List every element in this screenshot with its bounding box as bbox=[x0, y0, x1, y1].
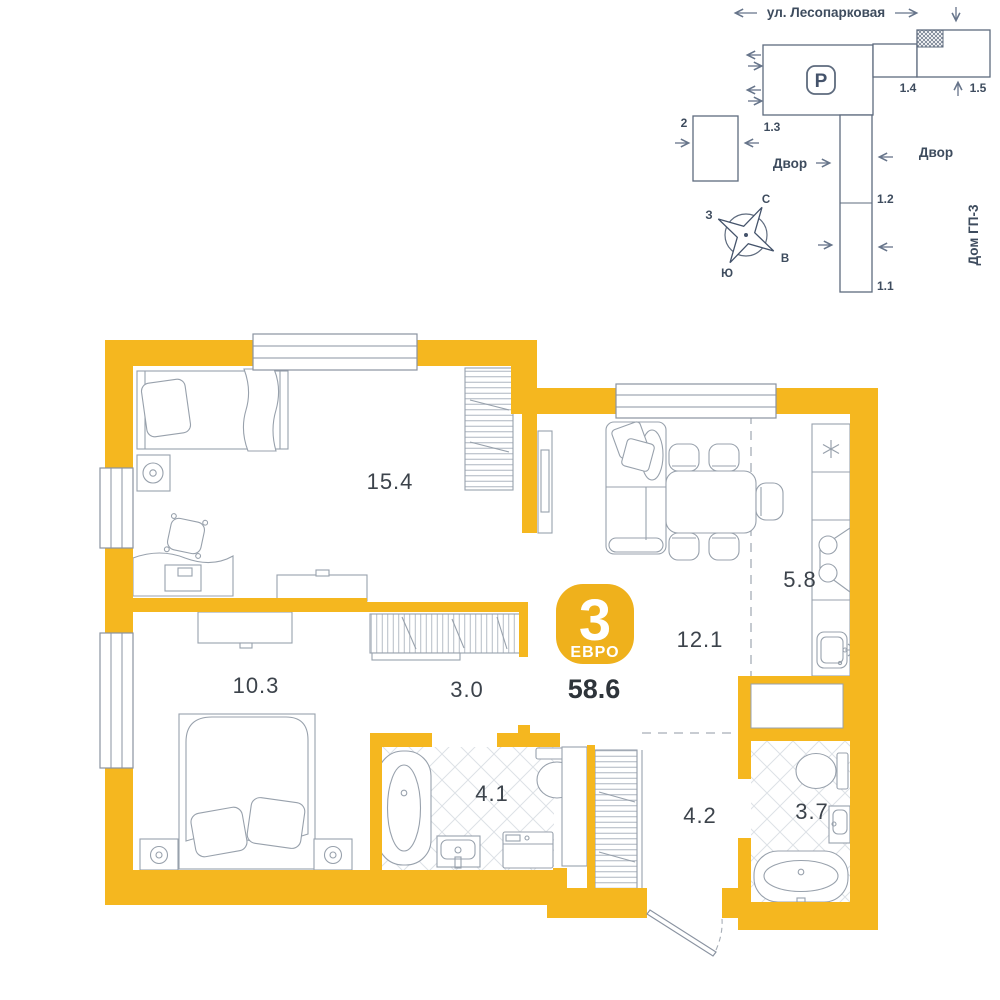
bathtub bbox=[754, 851, 848, 902]
wall bbox=[497, 733, 560, 747]
building-1-4 bbox=[873, 44, 917, 77]
site-plan: ул. Лесопарковая P 1.3 1.4 1.5 2 Двор Дв… bbox=[675, 5, 990, 293]
total-area-value: 58.6 bbox=[568, 674, 621, 704]
building-1-3-label: 1.3 bbox=[764, 120, 781, 134]
wall bbox=[522, 414, 537, 533]
building-2 bbox=[693, 116, 738, 181]
window bbox=[253, 334, 417, 370]
badge-type-label: ЕВРО bbox=[570, 644, 619, 661]
wall bbox=[738, 902, 878, 930]
laptop bbox=[165, 565, 201, 591]
pillow bbox=[140, 378, 191, 438]
dining-chair bbox=[669, 444, 699, 471]
room-area-label: 4.2 bbox=[683, 803, 717, 828]
room-area-label: 10.3 bbox=[233, 673, 280, 698]
bathroom-sink bbox=[829, 806, 850, 843]
room-bedroom-1 bbox=[133, 368, 552, 601]
yard-right-label: Двор bbox=[919, 145, 953, 160]
wall bbox=[519, 602, 528, 657]
compass-icon: С Ю З В bbox=[705, 194, 789, 280]
pillow bbox=[190, 806, 249, 858]
building-1-5-label: 1.5 bbox=[970, 81, 987, 95]
wall bbox=[587, 745, 595, 905]
current-building-marker bbox=[917, 30, 943, 47]
wardrobe bbox=[370, 614, 522, 653]
house-name-label: Дом ГП-3 bbox=[966, 204, 981, 265]
compass-east: В bbox=[781, 253, 789, 265]
wall bbox=[367, 602, 528, 612]
yard-left-label: Двор bbox=[773, 156, 807, 171]
bathroom-sink bbox=[437, 836, 480, 868]
room-area-label: 3.7 bbox=[795, 799, 829, 824]
apartment-plan: 15.4 10.3 3.0 12.1 5.8 4.1 4.2 3.7 3 ЕВР… bbox=[100, 334, 878, 956]
room-bedroom-2 bbox=[140, 612, 352, 870]
building-2-label: 2 bbox=[681, 116, 688, 130]
washing-machine bbox=[503, 832, 553, 868]
dining-armchair bbox=[756, 483, 783, 520]
wall bbox=[850, 388, 878, 930]
room-hallway bbox=[370, 614, 522, 660]
kitchen-sink bbox=[817, 632, 852, 668]
wall bbox=[738, 680, 751, 779]
dining-chair bbox=[709, 444, 739, 471]
wardrobe bbox=[465, 368, 513, 490]
floorplan-canvas: ул. Лесопарковая P 1.3 1.4 1.5 2 Двор Дв… bbox=[0, 0, 1000, 1000]
building-1-4-label: 1.4 bbox=[900, 81, 917, 95]
nightstand bbox=[140, 839, 178, 870]
room-entry-hall bbox=[595, 750, 642, 905]
room-area-label: 4.1 bbox=[475, 781, 509, 806]
nightstand bbox=[314, 839, 352, 870]
wardrobe-base bbox=[372, 653, 460, 660]
wall bbox=[553, 868, 567, 918]
compass-south: Ю bbox=[721, 268, 733, 280]
duct-niche-inner bbox=[751, 684, 843, 728]
window bbox=[100, 468, 133, 548]
building-1-1-label: 1.1 bbox=[877, 279, 894, 293]
speaker bbox=[137, 455, 170, 491]
tv bbox=[316, 570, 329, 576]
window bbox=[616, 384, 776, 418]
room-area-label: 12.1 bbox=[677, 627, 724, 652]
room-kitchen bbox=[812, 424, 852, 676]
parking-letter: P bbox=[815, 71, 828, 92]
dresser bbox=[198, 612, 292, 643]
pillow bbox=[246, 796, 306, 849]
wardrobe bbox=[595, 750, 637, 905]
dining-table bbox=[666, 471, 756, 533]
window bbox=[100, 633, 133, 768]
wall bbox=[370, 733, 432, 747]
wall bbox=[518, 725, 530, 733]
wall bbox=[738, 838, 751, 904]
floorplan-page: ул. Лесопарковая P 1.3 1.4 1.5 2 Двор Дв… bbox=[0, 0, 1000, 1000]
wall bbox=[133, 598, 367, 612]
dining-chair bbox=[709, 533, 739, 560]
entrance-door bbox=[647, 910, 722, 956]
room-area-label: 5.8 bbox=[783, 567, 817, 592]
toilet bbox=[796, 753, 848, 789]
tv bbox=[240, 643, 252, 648]
cabinet bbox=[562, 747, 587, 866]
bathtub bbox=[374, 751, 431, 865]
desk-chair bbox=[164, 513, 208, 559]
wall bbox=[105, 870, 560, 905]
room-living-dining bbox=[606, 421, 783, 560]
room-area-label: 15.4 bbox=[367, 469, 414, 494]
room-area-label: 3.0 bbox=[450, 677, 484, 702]
apartment-type-badge: 3 ЕВРО bbox=[556, 584, 634, 664]
tv-stand bbox=[277, 575, 367, 601]
compass-north: С bbox=[762, 194, 770, 206]
wall bbox=[370, 747, 382, 870]
wall bbox=[105, 340, 133, 468]
compass-west: З bbox=[705, 210, 712, 222]
wall bbox=[105, 548, 133, 633]
wall bbox=[105, 768, 133, 870]
street-label: ул. Лесопарковая bbox=[767, 5, 885, 20]
mirror bbox=[538, 431, 552, 533]
building-1-2-label: 1.2 bbox=[877, 192, 894, 206]
wall bbox=[722, 888, 738, 918]
dining-chair bbox=[669, 533, 699, 560]
blanket bbox=[243, 369, 278, 451]
